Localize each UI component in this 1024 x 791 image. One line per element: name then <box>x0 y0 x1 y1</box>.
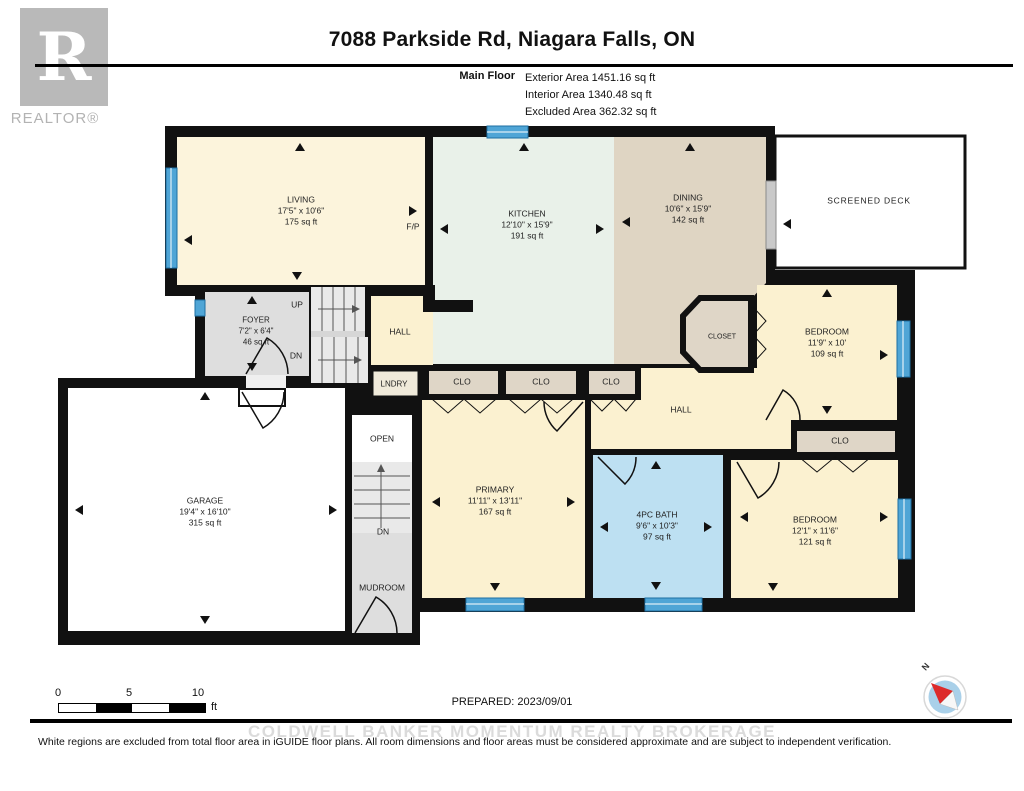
room-label-kitchen: KITCHEN 12'10" x 15'9" 191 sq ft <box>501 209 552 242</box>
open-label: OPEN <box>370 434 394 445</box>
primary-name: PRIMARY <box>468 485 522 496</box>
closet-bedroom2-label: CLO <box>831 436 848 447</box>
mudroom-label: MUDROOM <box>359 583 405 594</box>
closet2-label: CLO <box>532 377 549 388</box>
room-label-bedroom1: BEDROOM 11'9" x 10' 109 sq ft <box>805 327 849 360</box>
room-label-dining: DINING 10'6" x 15'9" 142 sq ft <box>665 193 712 226</box>
garage-dims: 19'4" x 16'10" <box>179 507 230 518</box>
stairs-dn2-label: DN <box>377 527 389 538</box>
deck-sliding-door <box>766 181 776 249</box>
prepared-date: PREPARED: 2023/09/01 <box>0 696 1024 708</box>
fireplace-label: F/P <box>406 222 419 233</box>
floor-plan-page: R REALTOR® 7088 Parkside Rd, Niagara Fal… <box>0 0 1024 791</box>
bath-name: 4PC BATH <box>636 510 678 521</box>
dining-area: 142 sq ft <box>665 215 712 226</box>
room-label-bedroom2: BEDROOM 12'1" x 11'6" 121 sq ft <box>792 515 838 548</box>
dining-name: DINING <box>665 193 712 204</box>
laundry-label: LNDRY <box>381 379 408 390</box>
floor-plan-graphic <box>0 0 1024 791</box>
garage-name: GARAGE <box>179 496 230 507</box>
bath-area: 97 sq ft <box>636 532 678 543</box>
closet1-label: CLO <box>453 377 470 388</box>
living-area: 175 sq ft <box>278 217 325 228</box>
bedroom2-dims: 12'1" x 11'6" <box>792 526 838 537</box>
kitchen-name: KITCHEN <box>501 209 552 220</box>
bedroom1-area: 109 sq ft <box>805 349 849 360</box>
foyer-name: FOYER <box>239 315 274 326</box>
stairs-up-label: UP <box>291 300 303 311</box>
room-label-primary: PRIMARY 11'11" x 13'11" 167 sq ft <box>468 485 522 518</box>
bath-dims: 9'6" x 10'3" <box>636 521 678 532</box>
room-label-bath: 4PC BATH 9'6" x 10'3" 97 sq ft <box>636 510 678 543</box>
bedroom1-name: BEDROOM <box>805 327 849 338</box>
hall-upper-label: HALL <box>389 327 410 338</box>
foyer-dims: 7'2" x 6'4" <box>239 326 274 337</box>
bedroom2-area: 121 sq ft <box>792 537 838 548</box>
room-label-foyer: FOYER 7'2" x 6'4" 46 sq ft <box>239 315 274 348</box>
stairs-dn-label: DN <box>290 351 302 362</box>
closet-hex-label: CLOSET <box>708 332 736 343</box>
garage-area: 315 sq ft <box>179 518 230 529</box>
kitchen-dims: 12'10" x 15'9" <box>501 220 552 231</box>
disclaimer-text: White regions are excluded from total fl… <box>38 736 891 748</box>
closet3-label: CLO <box>602 377 619 388</box>
bedroom2-name: BEDROOM <box>792 515 838 526</box>
room-label-deck: SCREENED DECK <box>827 196 911 207</box>
bedroom1-dims: 11'9" x 10' <box>805 338 849 349</box>
room-label-garage: GARAGE 19'4" x 16'10" 315 sq ft <box>179 496 230 529</box>
hall-lower-label: HALL <box>670 405 691 416</box>
primary-area: 167 sq ft <box>468 507 522 518</box>
kitchen-area: 191 sq ft <box>501 231 552 242</box>
living-dims: 17'5" x 10'6" <box>278 206 325 217</box>
primary-dims: 11'11" x 13'11" <box>468 496 522 507</box>
room-label-living: LIVING 17'5" x 10'6" 175 sq ft <box>278 195 325 228</box>
living-name: LIVING <box>278 195 325 206</box>
foyer-area: 46 sq ft <box>239 337 274 348</box>
dining-dims: 10'6" x 15'9" <box>665 204 712 215</box>
